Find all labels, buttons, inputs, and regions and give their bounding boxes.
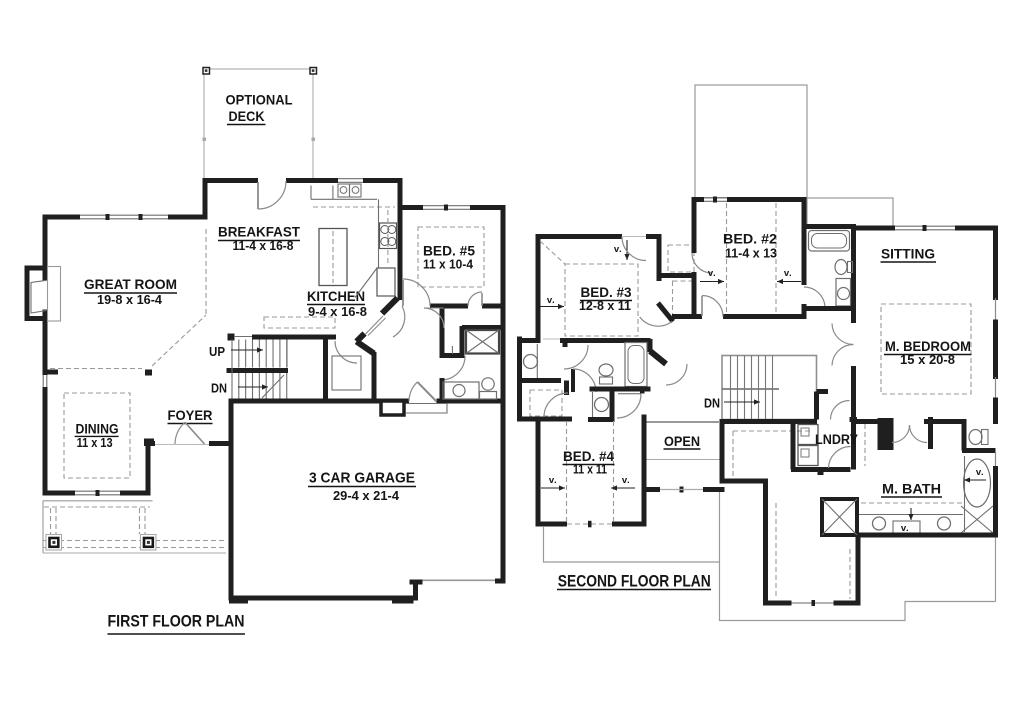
svg-text:M. BATH: M. BATH <box>882 481 941 497</box>
svg-text:12-8 x 11: 12-8 x 11 <box>579 299 631 313</box>
svg-text:BED. #3: BED. #3 <box>581 284 632 300</box>
svg-text:BREAKFAST: BREAKFAST <box>218 224 300 240</box>
svg-text:SECOND FLOOR PLAN: SECOND FLOOR PLAN <box>558 573 711 591</box>
svg-text:DINING: DINING <box>76 420 119 436</box>
svg-text:11 x 10-4: 11 x 10-4 <box>423 258 473 272</box>
svg-text:DN: DN <box>704 397 720 411</box>
svg-text:15 x 20-8: 15 x 20-8 <box>900 353 955 367</box>
svg-text:DN: DN <box>211 382 227 396</box>
svg-text:DECK: DECK <box>229 108 265 124</box>
svg-text:SITTING: SITTING <box>881 246 935 262</box>
svg-text:UP: UP <box>209 345 225 359</box>
svg-text:BED. #2: BED. #2 <box>723 231 777 247</box>
svg-text:29-4 x 21-4: 29-4 x 21-4 <box>333 489 399 503</box>
svg-text:v.: v. <box>976 467 984 478</box>
svg-text:BED. #5: BED. #5 <box>423 243 475 259</box>
svg-text:v.: v. <box>784 268 792 279</box>
svg-text:OPTIONAL: OPTIONAL <box>226 92 293 108</box>
svg-text:v.: v. <box>547 295 555 306</box>
svg-text:11-4 x 16-8: 11-4 x 16-8 <box>233 239 294 253</box>
svg-text:LNDRY: LNDRY <box>815 432 858 447</box>
svg-text:19-8 x 16-4: 19-8 x 16-4 <box>97 293 162 307</box>
svg-text:11 x 13: 11 x 13 <box>77 436 113 450</box>
svg-text:v.: v. <box>614 244 622 255</box>
svg-text:M. BEDROOM: M. BEDROOM <box>885 338 971 354</box>
svg-text:11-4 x 13: 11-4 x 13 <box>725 247 777 261</box>
svg-text:FIRST FLOOR PLAN: FIRST FLOOR PLAN <box>108 613 245 631</box>
svg-text:v.: v. <box>622 475 630 486</box>
svg-text:3 CAR GARAGE: 3 CAR GARAGE <box>309 470 415 487</box>
svg-text:v.: v. <box>901 523 909 534</box>
svg-text:v.: v. <box>549 475 557 486</box>
svg-text:FOYER: FOYER <box>168 407 213 423</box>
svg-text:v.: v. <box>708 268 716 279</box>
svg-text:GREAT ROOM: GREAT ROOM <box>84 276 177 292</box>
svg-text:OPEN: OPEN <box>664 433 700 449</box>
svg-text:11 x 11: 11 x 11 <box>573 463 607 477</box>
